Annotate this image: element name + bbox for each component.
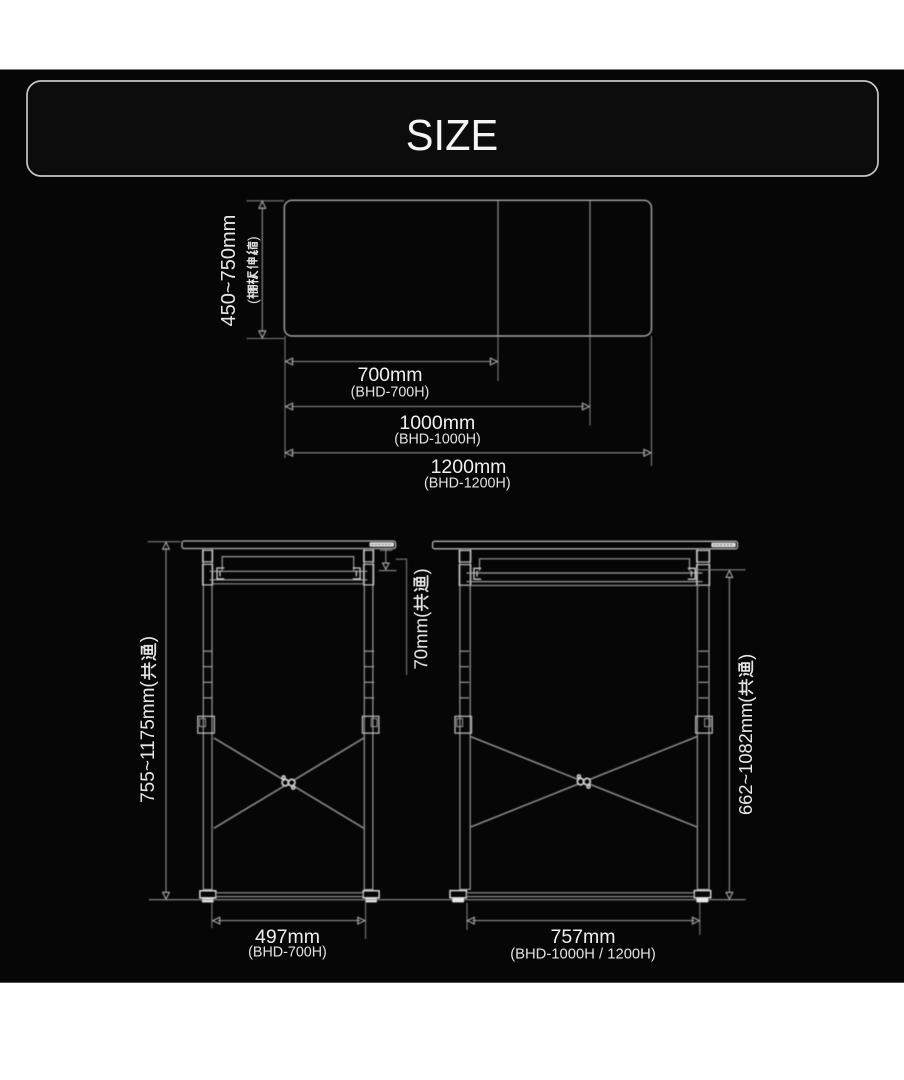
svg-text:757mm: 757mm <box>550 926 615 948</box>
svg-text:450~750mm: 450~750mm <box>218 215 240 327</box>
svg-text:(BHD-700H): (BHD-700H) <box>351 385 430 401</box>
svg-text:(BHD-1000H / 1200H): (BHD-1000H / 1200H) <box>510 946 656 962</box>
svg-text:SIZE: SIZE <box>406 111 498 160</box>
svg-text:): ) <box>138 636 159 642</box>
svg-text:662~1082mm(: 662~1082mm( <box>735 697 756 815</box>
svg-text:700mm: 700mm <box>357 364 422 386</box>
svg-text:): ) <box>735 654 756 660</box>
svg-text:): ) <box>245 236 261 241</box>
svg-text:(BHD-1000H): (BHD-1000H) <box>394 431 481 447</box>
svg-text:755~1175mm(: 755~1175mm( <box>138 681 159 803</box>
svg-text:(BHD-700H): (BHD-700H) <box>248 945 327 961</box>
svg-text:(BHD-1200H): (BHD-1200H) <box>424 476 511 492</box>
svg-text:): ) <box>410 568 431 574</box>
svg-text:70mm(: 70mm( <box>410 611 431 670</box>
svg-text:(: ( <box>245 299 261 304</box>
